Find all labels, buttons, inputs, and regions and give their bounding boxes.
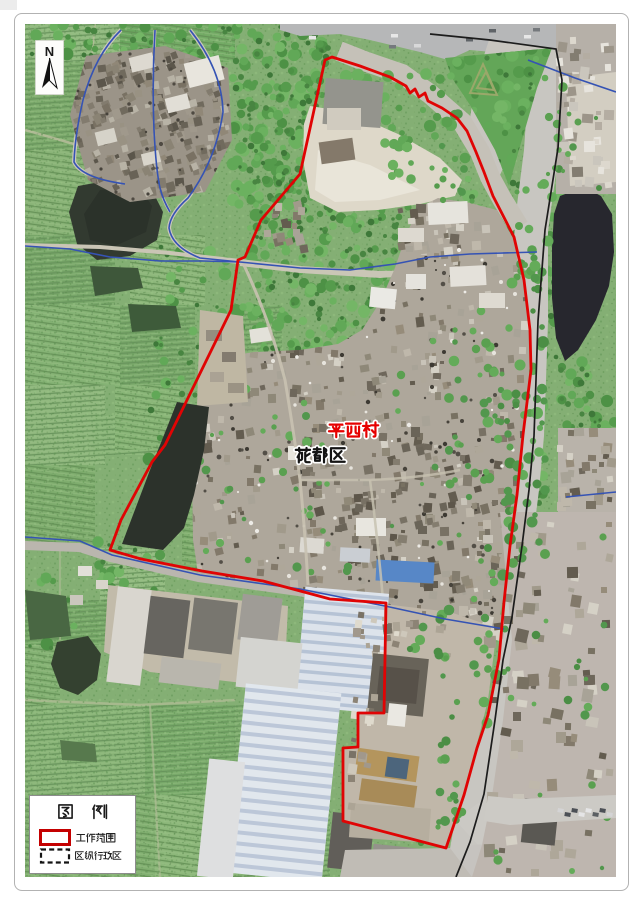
svg-text:N: N — [45, 44, 54, 59]
